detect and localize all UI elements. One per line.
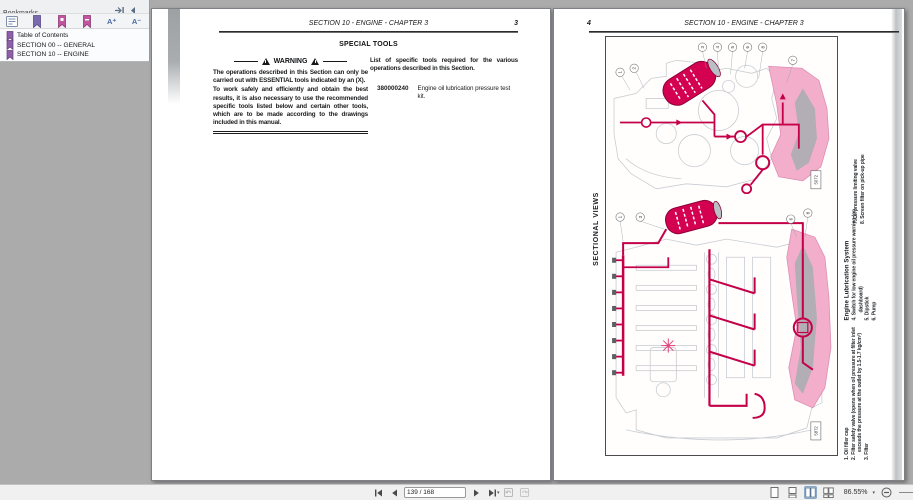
engine-transverse-section-diagram: 1 2 3 4 5 6 8 7 5072	[606, 38, 837, 194]
previous-view-button[interactable]	[502, 487, 514, 499]
zoom-level[interactable]: 86.55%	[844, 489, 868, 496]
legend-heading: Engine Lubrication System	[845, 193, 851, 321]
warning-label: WARNING	[274, 58, 308, 65]
warning-bottom-rule	[213, 131, 368, 134]
engine-longitudinal-section-diagram: 1 3 6 8 5872	[606, 197, 837, 453]
bookmark-item-toc[interactable]: Table of Contents	[6, 31, 149, 41]
legend-item: 2. Filter safety valve (opens when oil p…	[851, 308, 864, 460]
collapse-bookmark-icon[interactable]	[80, 15, 93, 27]
page-navigation: ▾	[372, 485, 530, 500]
zoom-dropdown-icon[interactable]: ▾	[872, 490, 875, 496]
zoom-out-button[interactable]	[880, 487, 892, 499]
bookmark-item-section10[interactable]: SECTION 10 -- ENGINE	[6, 50, 149, 60]
legend-group-middle: Engine Lubrication System 4. Switch for …	[845, 193, 880, 321]
warning-triangle-icon	[262, 58, 270, 65]
previous-page-button[interactable]	[388, 487, 400, 499]
scan-gutter-shadow	[168, 9, 180, 104]
header-rule	[589, 31, 899, 33]
new-bookmark-icon[interactable]	[31, 15, 44, 27]
view-controls: 86.55% ▾	[768, 485, 913, 500]
page-header-title: SECTION 10 - ENGINE - CHAPTER 3	[589, 20, 899, 27]
bookmarks-panel-header: Bookmarks	[0, 0, 149, 13]
legend-group-bottom: 1. Oil filler cap 2. Filter safety valve…	[844, 308, 874, 460]
figure-tag: 5872	[813, 426, 818, 436]
figure-tag: 5072	[814, 174, 819, 184]
header-rule	[219, 31, 518, 33]
two-page-continuous-view-icon[interactable]	[822, 486, 835, 499]
bookmark-ribbon-icon	[6, 40, 14, 50]
warning-paragraph: The operations described in this Section…	[213, 69, 368, 85]
legend-item: 5. Dipstick	[865, 193, 872, 321]
bookmarks-toolbar: A⁺ A⁻	[0, 13, 149, 29]
tool-code: 380000240	[377, 85, 409, 101]
page-header-title: SECTION 10 - ENGINE - CHAPTER 3	[219, 20, 518, 27]
tool-entry-row: 380000240 Engine oil lubrication pressur…	[377, 85, 518, 101]
warning-box: WARNING The operations described in this…	[213, 57, 368, 134]
warning-paragraph: To work safely and efficiently and obtai…	[213, 86, 368, 127]
tool-description: Engine oil lubrication pressure test kit…	[418, 85, 518, 101]
figure-box: 1 2 3 4 5 6 8 7 5072	[605, 36, 838, 456]
pdf-page-3: SECTION 10 - ENGINE - CHAPTER 3 3 SPECIA…	[151, 8, 551, 481]
legend-item: 3. Filter	[864, 308, 871, 460]
dock-panel-icon[interactable]	[114, 2, 125, 11]
bookmark-item-label: SECTION 10 -- ENGINE	[17, 51, 89, 58]
bookmark-options-icon[interactable]	[6, 15, 19, 27]
warning-rule-left	[234, 61, 258, 62]
section-heading: SPECIAL TOOLS	[219, 41, 518, 48]
legend-item: 1. Oil filler cap	[844, 308, 851, 460]
expand-bookmark-icon[interactable]	[56, 15, 69, 27]
sectional-views-label: SECTIONAL VIEWS	[593, 179, 603, 279]
next-page-button[interactable]	[470, 487, 482, 499]
bookmark-item-section00[interactable]: SECTION 00 -- GENERAL	[6, 41, 149, 51]
collapse-panel-icon[interactable]	[128, 2, 139, 11]
status-bar: ▾	[0, 484, 913, 500]
bookmarks-tree: Table of Contents SECTION 00 -- GENERAL …	[0, 29, 149, 61]
warning-rule-right	[323, 61, 347, 62]
two-page-view-icon[interactable]	[804, 486, 817, 499]
tools-intro: List of specific tools required for the …	[370, 57, 518, 73]
increase-font-icon[interactable]: A⁺	[105, 15, 118, 27]
bookmark-item-label: Table of Contents	[17, 32, 68, 39]
warning-triangle-icon	[311, 58, 319, 65]
bookmark-item-label: SECTION 00 -- GENERAL	[17, 42, 95, 49]
warning-header: WARNING	[213, 57, 368, 66]
zoom-slider[interactable]	[899, 492, 913, 493]
continuous-view-icon[interactable]	[786, 486, 799, 499]
bookmarks-panel: Bookmarks A⁺ A⁻	[0, 0, 150, 62]
decrease-font-icon[interactable]: A⁻	[130, 15, 143, 27]
next-view-button[interactable]	[518, 487, 530, 499]
legend-item: 6. Pump	[871, 193, 878, 321]
page-number-field[interactable]: ▾	[404, 487, 466, 498]
pdf-page-4: 4 SECTION 10 - ENGINE - CHAPTER 3 SECTIO…	[553, 8, 905, 481]
scan-gutter-shadow	[891, 9, 902, 481]
single-page-view-icon[interactable]	[768, 486, 781, 499]
bookmark-ribbon-icon	[6, 31, 14, 41]
page-number: 3	[498, 20, 518, 27]
legend-item: 4. Switch for low engine oil pressure wa…	[852, 193, 865, 321]
last-page-button[interactable]	[486, 487, 498, 499]
first-page-button[interactable]	[372, 487, 384, 499]
pdf-viewer-window: Bookmarks A⁺ A⁻	[0, 0, 913, 500]
bookmark-ribbon-icon	[6, 50, 14, 60]
